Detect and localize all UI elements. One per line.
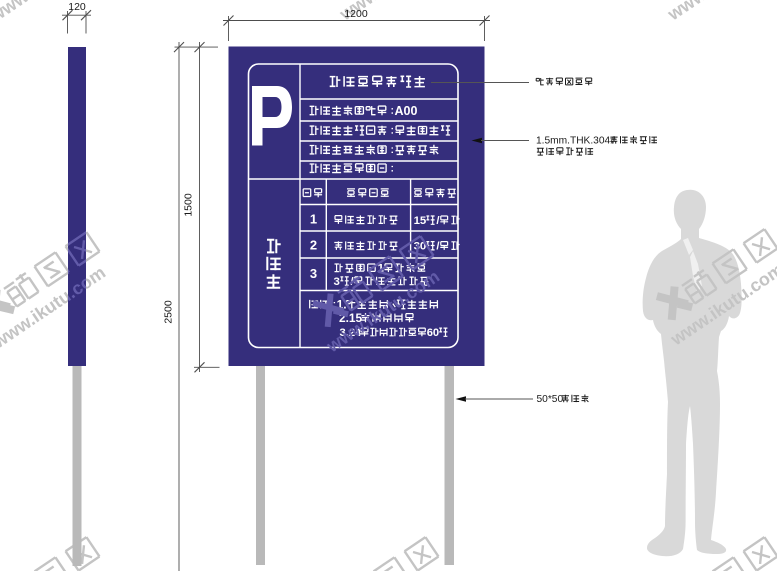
svg-text:50*50: 50*50 bbox=[537, 394, 564, 405]
svg-text:1: 1 bbox=[310, 212, 317, 227]
svg-text:1500: 1500 bbox=[183, 193, 195, 217]
svg-text:60: 60 bbox=[427, 327, 439, 339]
svg-text:1.5mm.THK.304#: 1.5mm.THK.304# bbox=[536, 135, 616, 146]
svg-text:1200: 1200 bbox=[344, 8, 368, 20]
svg-text:2: 2 bbox=[310, 238, 317, 253]
svg-text:A00: A00 bbox=[395, 104, 418, 118]
svg-text:3: 3 bbox=[310, 266, 317, 281]
svg-text:15: 15 bbox=[414, 215, 427, 227]
svg-text:3: 3 bbox=[334, 276, 340, 288]
svg-text:2500: 2500 bbox=[163, 300, 175, 324]
